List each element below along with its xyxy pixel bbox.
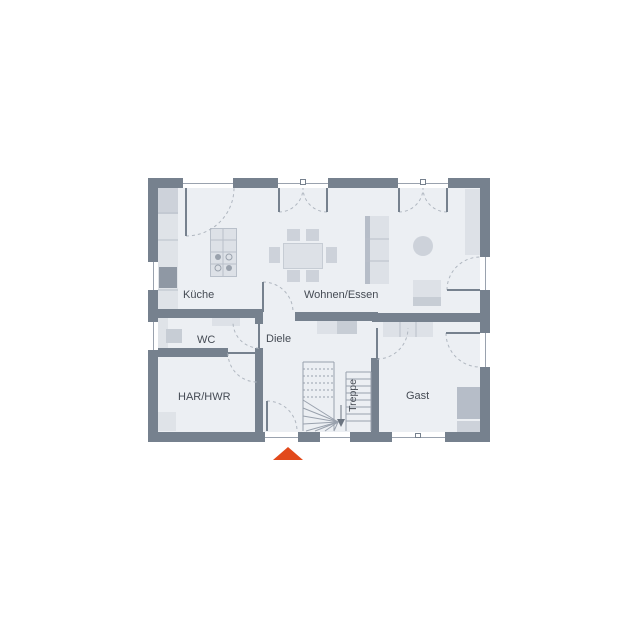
window-handle-marker — [300, 179, 306, 185]
dining-chair — [287, 229, 300, 241]
wc-sink — [166, 329, 182, 343]
dining-chair — [326, 247, 337, 263]
entrance-marker triangle-up-icon — [273, 447, 303, 460]
utility-unit — [158, 412, 176, 431]
wall-left — [148, 178, 158, 442]
wall-kitchen-wc — [158, 309, 263, 318]
window-handle-marker — [415, 433, 421, 438]
window-stairs — [320, 432, 350, 442]
kitchen-oven — [159, 267, 177, 288]
hall-sideboard — [317, 321, 337, 334]
wall-living-guest — [372, 313, 480, 322]
wall-right — [480, 178, 490, 442]
guest-wardrobe — [383, 322, 433, 337]
floor-plan-canvas: Küche Wohnen/Essen WC Diele HAR/HWR Trep… — [0, 0, 636, 636]
room-label-har-hwr: HAR/HWR — [178, 391, 231, 403]
wall-living-hall — [295, 312, 378, 321]
side-table — [413, 236, 433, 256]
wall-hall-utility — [255, 357, 263, 432]
dining-chair — [306, 229, 319, 241]
kitchen-island — [210, 228, 237, 277]
living-shelf-side — [365, 216, 370, 284]
door-entrance — [265, 432, 298, 442]
kitchen-fridge — [158, 188, 178, 214]
room-label-wohnen-essen: Wohnen/Essen — [304, 289, 378, 301]
guest-bed-pillow — [457, 421, 480, 432]
room-label-treppe: Treppe — [347, 379, 359, 412]
door-terrace-living — [480, 257, 490, 290]
door-terrace-guest — [480, 333, 490, 367]
hall-sideboard — [337, 321, 357, 334]
armchair-back — [413, 297, 441, 306]
wall-stairs-guest — [371, 358, 379, 432]
sideboard-right — [465, 189, 480, 255]
dining-chair — [287, 270, 300, 282]
room-label-wc: WC — [197, 334, 215, 346]
armchair — [413, 280, 441, 297]
door-terrace-kitchen — [183, 178, 233, 188]
window-wc — [148, 322, 158, 350]
wall-wc-stub-top — [255, 318, 263, 324]
dining-chair — [306, 270, 319, 282]
wall-wc-corner — [255, 348, 263, 357]
room-label-kueche: Küche — [183, 289, 214, 301]
room-label-gast: Gast — [406, 390, 429, 402]
window-kitchen — [148, 262, 158, 290]
guest-bed — [457, 387, 480, 419]
room-label-diele: Diele — [266, 333, 291, 345]
dining-table — [283, 243, 323, 269]
wc-shelf — [212, 318, 240, 326]
dining-chair — [269, 247, 280, 263]
wall-wc-utility — [158, 348, 228, 357]
window-handle-marker — [420, 179, 426, 185]
